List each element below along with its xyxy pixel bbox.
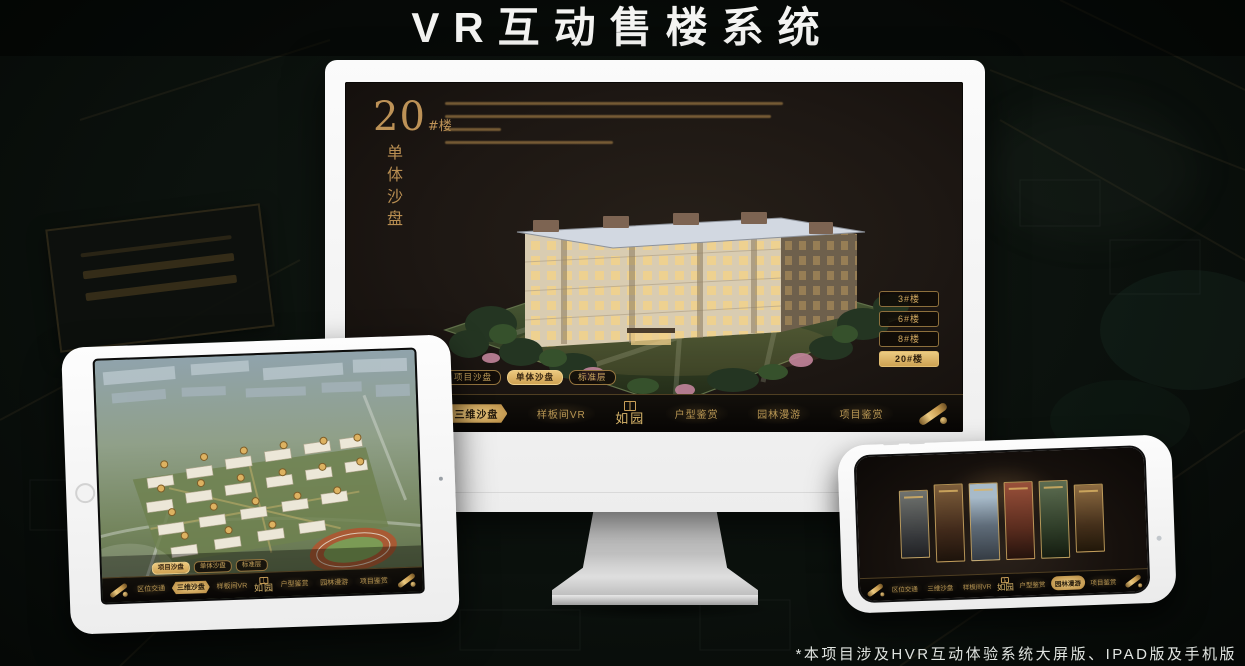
phone-camera-icon bbox=[1156, 535, 1161, 540]
logo-text: 如园 bbox=[254, 584, 274, 594]
scene-card-3[interactable] bbox=[969, 482, 1001, 561]
poster: VR互动售楼系统 20#楼 单体沙盘 bbox=[0, 0, 1245, 666]
phone-menu-item-3d-sandtable[interactable]: 三维沙盘 bbox=[923, 580, 957, 595]
logo-seal-icon bbox=[259, 576, 268, 583]
tablet-menu-item-location-transport[interactable]: 区位交通 bbox=[132, 581, 170, 596]
menu-item-3d-sandtable[interactable]: 三维沙盘 bbox=[445, 403, 507, 424]
phone-volume-button-2[interactable] bbox=[909, 441, 925, 445]
building-button-3[interactable]: 3#楼 bbox=[879, 291, 939, 307]
footnote: *本项目涉及HVR互动体验系统大屏版、IPAD版及手机版 bbox=[796, 643, 1237, 664]
phone-brand-logo: 如园 bbox=[997, 577, 1015, 593]
scene-card-1[interactable] bbox=[899, 490, 930, 559]
building-button-8[interactable]: 8#楼 bbox=[879, 331, 939, 347]
tablet-home-button[interactable] bbox=[75, 482, 96, 503]
block-title: 20#楼 bbox=[373, 96, 452, 138]
building-selector: 3#楼 6#楼 8#楼 20#楼 bbox=[879, 291, 939, 367]
scroll-icon-left[interactable] bbox=[864, 581, 887, 598]
phone-volume-button[interactable] bbox=[883, 442, 899, 446]
tablet-menu-item-project-view[interactable]: 项目鉴赏 bbox=[355, 573, 393, 588]
building-model-render bbox=[433, 134, 919, 410]
vr-scene-cards bbox=[899, 479, 1106, 564]
menu-item-garden-roam[interactable]: 园林漫游 bbox=[748, 403, 810, 424]
phone-bottom-menu: 区位交通 三维沙盘 样板间VR 如园 户型鉴赏 园林漫游 项目鉴赏 bbox=[860, 568, 1149, 601]
block-subtitle-vertical: 单体沙盘 bbox=[381, 144, 405, 232]
tablet-menu-item-3d-sandtable[interactable]: 三维沙盘 bbox=[172, 580, 210, 595]
scroll-icon-right[interactable] bbox=[1122, 572, 1145, 589]
scroll-icon-right[interactable] bbox=[394, 571, 419, 590]
menu-item-floorplan[interactable]: 户型鉴赏 bbox=[666, 403, 728, 424]
building-button-20[interactable]: 20#楼 bbox=[879, 351, 939, 367]
scroll-icon[interactable] bbox=[913, 400, 953, 428]
tab-standard-floor[interactable]: 标准层 bbox=[569, 370, 616, 385]
scene-card-6[interactable] bbox=[1074, 484, 1105, 553]
block-number: 20 bbox=[373, 94, 426, 140]
background-glow bbox=[980, 100, 1200, 240]
background-plaque bbox=[45, 203, 275, 352]
tablet-device: 项目沙盘 单体沙盘 标准层 区位交通 三维沙盘 样板间VR 如园 户型鉴赏 园林… bbox=[61, 334, 460, 634]
scene-card-2[interactable] bbox=[934, 484, 966, 563]
monitor-sub-tabs: 项目沙盘 单体沙盘 标准层 bbox=[445, 370, 616, 385]
scene-card-4[interactable] bbox=[1004, 481, 1036, 560]
tablet-tab-project-sandtable[interactable]: 项目沙盘 bbox=[152, 562, 190, 575]
logo-seal-icon bbox=[624, 401, 636, 411]
tablet-menu-item-floorplan[interactable]: 户型鉴赏 bbox=[275, 576, 313, 591]
phone-menu-item-project-view[interactable]: 项目鉴赏 bbox=[1086, 574, 1120, 589]
logo-text: 如园 bbox=[997, 584, 1014, 593]
scroll-icon-left[interactable] bbox=[106, 581, 131, 600]
tablet-menu-item-model-room-vr[interactable]: 样板间VR bbox=[211, 578, 252, 593]
menu-item-model-room-vr[interactable]: 样板间VR bbox=[528, 403, 595, 424]
building-button-6[interactable]: 6#楼 bbox=[879, 311, 939, 327]
phone-menu-item-location-transport[interactable]: 区位交通 bbox=[888, 581, 922, 596]
tablet-camera-icon bbox=[439, 476, 443, 480]
tablet-brand-logo: 如园 bbox=[254, 576, 275, 594]
scene-card-5[interactable] bbox=[1039, 480, 1071, 559]
tab-project-sandtable[interactable]: 项目沙盘 bbox=[445, 370, 501, 385]
phone-screen: 区位交通 三维沙盘 样板间VR 如园 户型鉴赏 园林漫游 项目鉴赏 bbox=[856, 447, 1149, 601]
phone-menu-item-floorplan[interactable]: 户型鉴赏 bbox=[1015, 577, 1049, 592]
menu-item-project-view[interactable]: 项目鉴赏 bbox=[831, 403, 893, 424]
page-title: VR互动售楼系统 bbox=[0, 0, 1245, 56]
tablet-menu-item-garden-roam[interactable]: 园林漫游 bbox=[315, 575, 353, 590]
phone-menu-item-garden-roam[interactable]: 园林漫游 bbox=[1051, 575, 1085, 590]
tablet-tab-standard-floor[interactable]: 标准层 bbox=[236, 559, 268, 572]
tab-single-sandtable[interactable]: 单体沙盘 bbox=[507, 370, 563, 385]
brand-logo: 如园 bbox=[615, 401, 645, 426]
phone-device: 区位交通 三维沙盘 样板间VR 如园 户型鉴赏 园林漫游 项目鉴赏 bbox=[837, 434, 1177, 614]
tablet-screen: 项目沙盘 单体沙盘 标准层 区位交通 三维沙盘 样板间VR 如园 户型鉴赏 园林… bbox=[95, 350, 423, 603]
phone-menu-item-model-room-vr[interactable]: 样板间VR bbox=[959, 578, 996, 593]
tablet-tab-single-sandtable[interactable]: 单体沙盘 bbox=[194, 560, 232, 573]
logo-text: 如园 bbox=[615, 413, 645, 426]
